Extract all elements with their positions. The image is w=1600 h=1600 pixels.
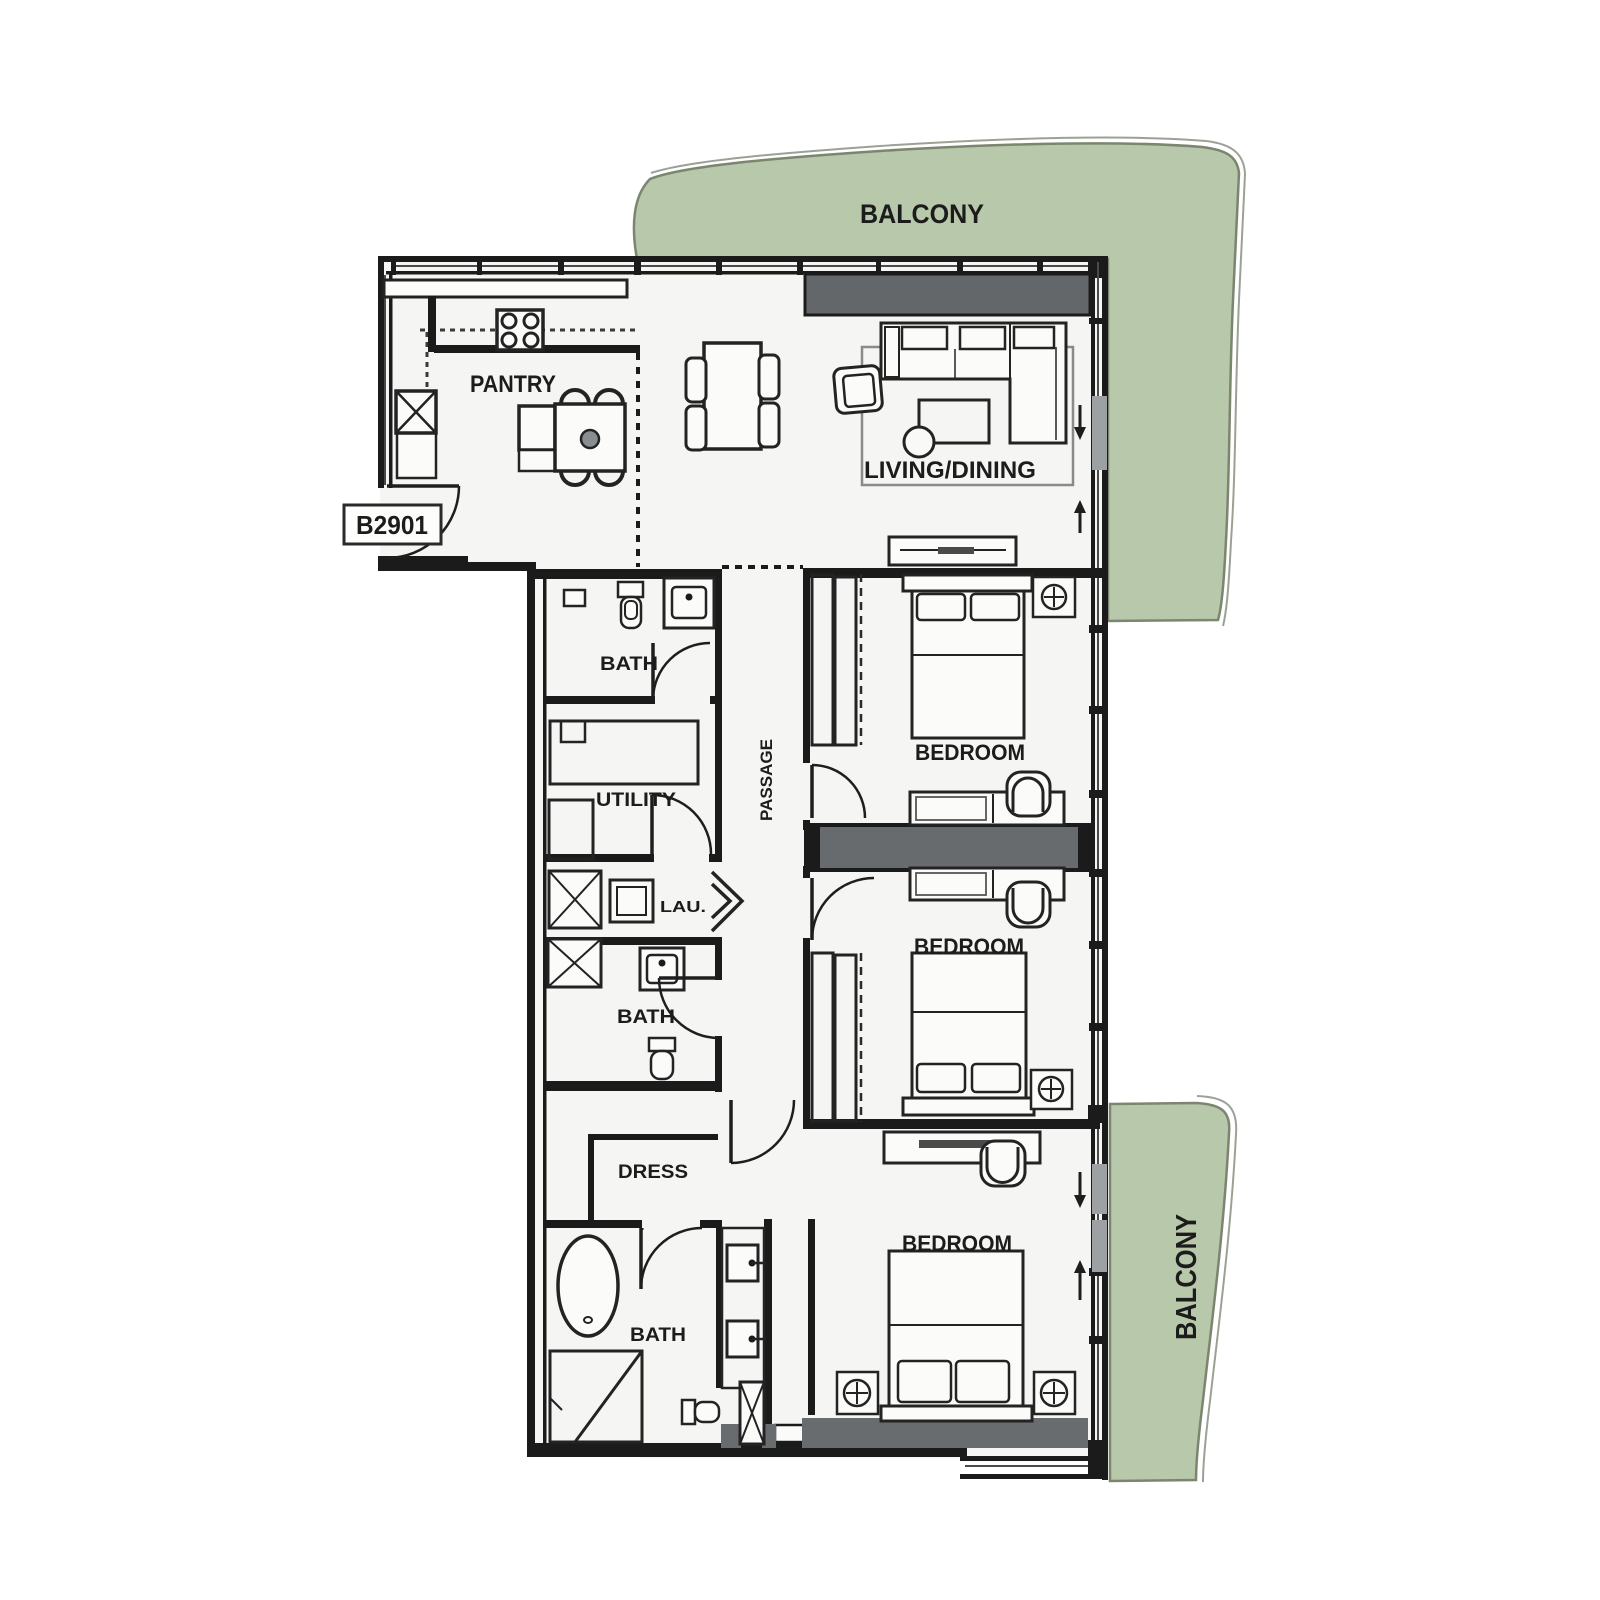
svg-text:BEDROOM: BEDROOM [914,934,1024,959]
svg-text:LAU.: LAU. [660,899,706,916]
svg-text:BATH: BATH [600,654,658,675]
svg-text:BEDROOM: BEDROOM [902,1231,1012,1256]
svg-text:BALCONY: BALCONY [860,199,984,229]
svg-text:DRESS: DRESS [618,1162,688,1183]
svg-text:PASSAGE: PASSAGE [757,739,776,821]
svg-text:BATH: BATH [630,1325,686,1346]
svg-text:B2901: B2901 [356,510,428,540]
svg-text:PANTRY: PANTRY [470,371,556,398]
svg-text:BALCONY: BALCONY [1171,1214,1203,1340]
svg-text:BATH: BATH [617,1007,675,1028]
svg-text:LIVING/DINING: LIVING/DINING [864,457,1036,484]
svg-text:BEDROOM: BEDROOM [915,740,1025,765]
svg-text:UTILITY: UTILITY [596,790,676,811]
